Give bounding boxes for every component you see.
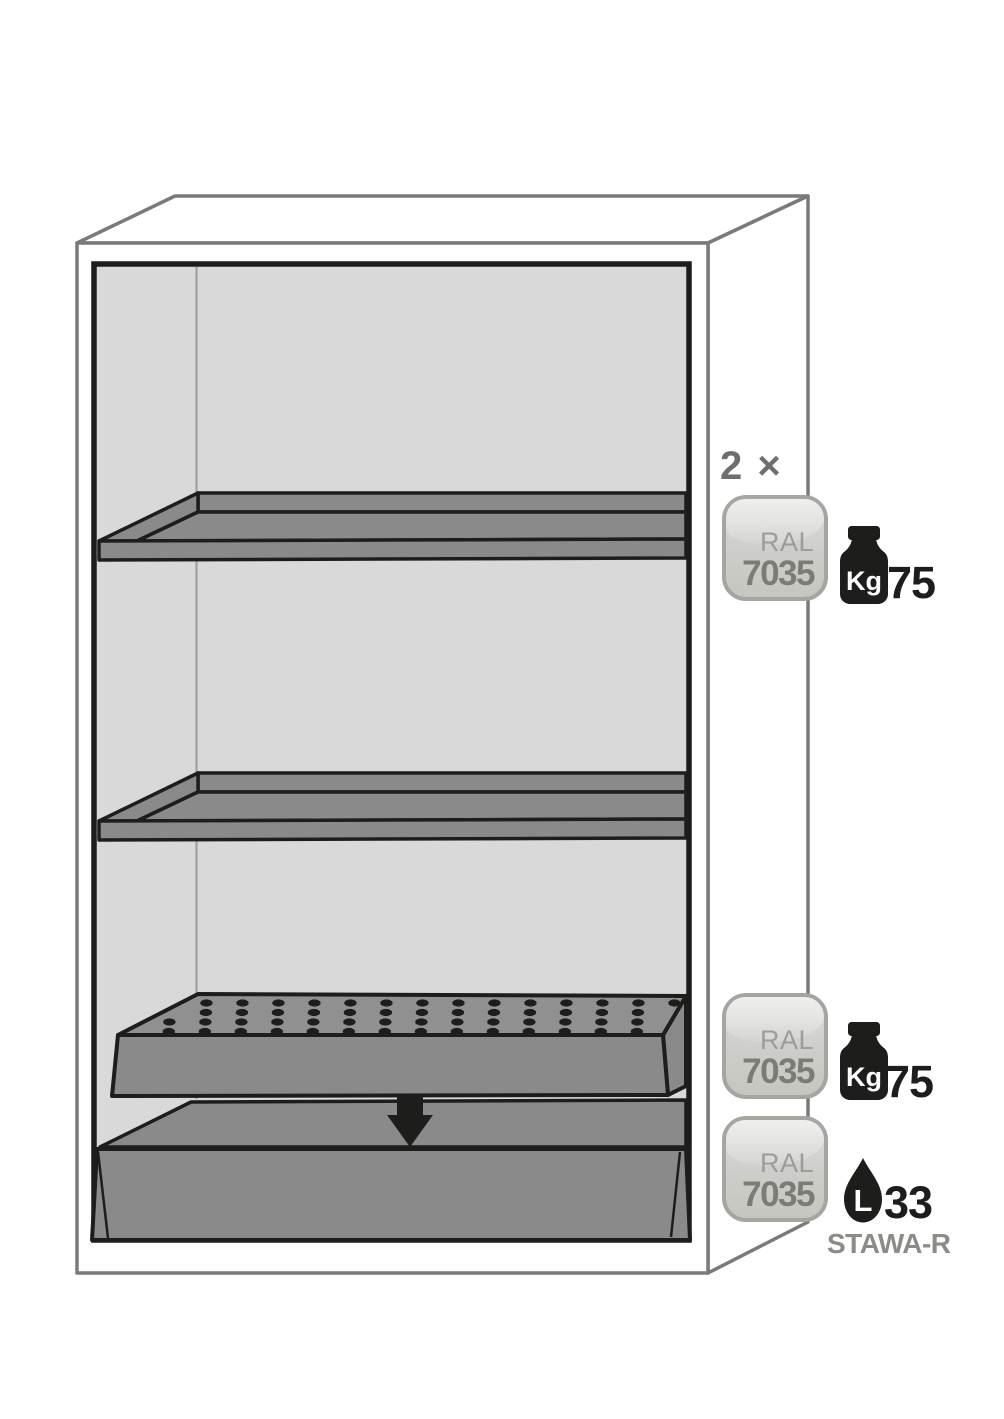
ral-code: 7035 [742, 556, 814, 592]
liter-drop-icon: L [840, 1157, 886, 1223]
sump-volume-value: 33 [884, 1180, 932, 1225]
ral-badge-insert: RAL 7035 [722, 993, 828, 1099]
ral-code: 7035 [742, 1054, 814, 1090]
shelf-tray-upper [99, 493, 686, 560]
kg-unit-label: Kg [846, 566, 882, 596]
ral-label: RAL [742, 1027, 814, 1055]
shelf-load-value: 75 [887, 560, 935, 605]
ral-code: 7035 [742, 1177, 814, 1213]
ral-label: RAL [742, 1150, 814, 1178]
weight-kg-icon: Kg [840, 526, 888, 604]
cabinet-equipment-diagram: 2 × RAL 7035 RAL 7035 RAL 7035 Kg 75 Kg [0, 0, 1004, 1419]
cabinet-top-face [77, 196, 808, 243]
stawa-r-label: STAWA-R [827, 1228, 951, 1260]
perforated-insert [112, 994, 686, 1096]
insert-load-value: 75 [885, 1059, 933, 1104]
cabinet-right-side [708, 196, 808, 1273]
ral-badge-sump: RAL 7035 [722, 1116, 828, 1222]
shelf-tray-lower [99, 773, 686, 840]
quantity-label: 2 × [720, 444, 783, 489]
liter-unit-label: L [854, 1183, 873, 1218]
ral-label: RAL [742, 529, 814, 557]
weight-kg-icon: Kg [840, 1022, 888, 1100]
ral-badge-shelf: RAL 7035 [722, 495, 828, 601]
bottom-sump-tray [92, 1100, 690, 1240]
kg-unit-label: Kg [846, 1062, 882, 1092]
